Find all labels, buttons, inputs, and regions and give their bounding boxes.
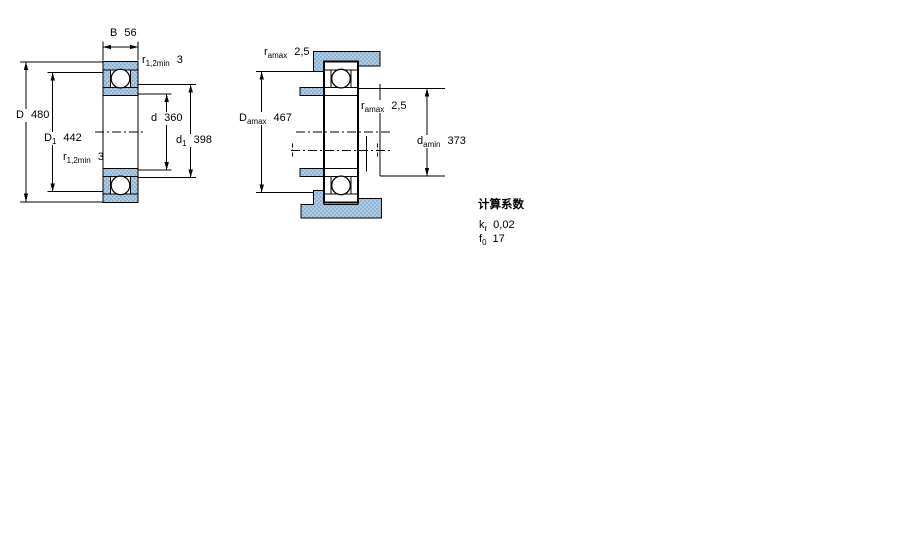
value: 3 xyxy=(98,151,104,163)
symbol: d xyxy=(151,112,157,124)
symbol: B xyxy=(110,27,117,39)
label-shaft-fillet-ramax: ramax2,5 xyxy=(360,100,408,113)
right-bottom-ball xyxy=(332,176,351,195)
value: 17 xyxy=(493,233,505,245)
left-bearing-cross-section xyxy=(95,62,146,203)
value: 0,02 xyxy=(493,219,514,231)
value: 398 xyxy=(194,134,212,146)
subscript: 1 xyxy=(182,139,186,148)
symbol: D xyxy=(239,112,247,124)
label-housing-abutment-Damax: Damax467 xyxy=(238,112,293,125)
value: 442 xyxy=(63,132,81,144)
subscript: 1 xyxy=(52,137,56,146)
label-shoulder-diameter-d1: d1398 xyxy=(175,134,213,147)
calculation-factors-heading: 计算系数 xyxy=(478,196,524,212)
label-shaft-abutment-damin: damin373 xyxy=(416,135,467,148)
bearing-drawing-page: B56 r1,2min3 D480 D1442 r1,2min3 d360 d1… xyxy=(0,0,900,560)
value: 2,5 xyxy=(294,46,309,58)
right-top-ball xyxy=(332,69,351,88)
right-mounted-bearing xyxy=(291,52,392,219)
label-housing-fillet-ramax: ramax2,5 xyxy=(263,46,311,59)
value: 480 xyxy=(31,109,49,121)
value: 2,5 xyxy=(391,100,406,112)
subscript: amax xyxy=(365,105,385,114)
label-width-B: B56 xyxy=(109,27,138,40)
label-outer-diameter-D: D480 xyxy=(15,109,50,122)
shaft-shoulder-top xyxy=(300,87,324,95)
label-recess-diameter-D1: D1442 xyxy=(43,132,83,145)
calc-factor-kr: kr0,02 xyxy=(479,219,515,231)
symbol: D xyxy=(44,132,52,144)
subscript: amin xyxy=(423,140,440,149)
subscript: amax xyxy=(247,117,267,126)
label-fillet-bottom: r1,2min3 xyxy=(62,151,105,164)
value: 3 xyxy=(177,54,183,66)
shaft-shoulder-bottom xyxy=(300,168,324,176)
subscript: 1,2min xyxy=(67,156,91,165)
calc-factor-f0: f017 xyxy=(479,233,505,245)
left-top-ball xyxy=(111,69,130,88)
symbol: k xyxy=(479,219,485,231)
bearing-technical-drawing xyxy=(0,0,900,560)
subscript: 0 xyxy=(482,238,486,247)
value: 56 xyxy=(124,27,136,39)
label-fillet-top: r1,2min3 xyxy=(141,54,184,67)
value: 467 xyxy=(274,112,292,124)
subscript: amax xyxy=(268,51,288,60)
label-bore-diameter-d: d360 xyxy=(150,112,183,125)
subscript: r xyxy=(485,224,488,233)
value: 360 xyxy=(164,112,182,124)
value: 373 xyxy=(447,135,465,147)
left-bottom-ball xyxy=(111,176,130,195)
subscript: 1,2min xyxy=(146,59,170,68)
symbol: D xyxy=(16,109,24,121)
